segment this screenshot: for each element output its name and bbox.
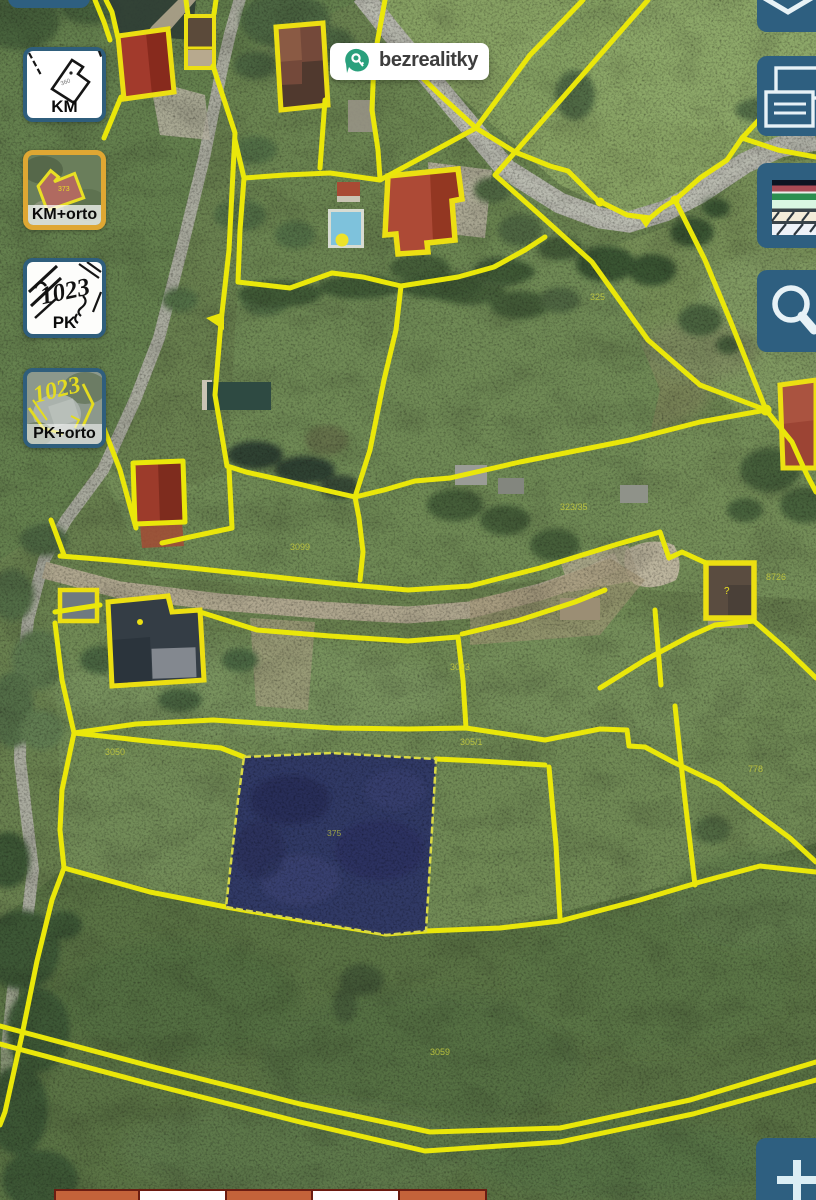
- svg-text:778: 778: [748, 764, 763, 774]
- svg-text:375: 375: [327, 828, 341, 838]
- svg-text:3093: 3093: [450, 662, 470, 672]
- svg-text:323/35: 323/35: [560, 502, 588, 512]
- svg-text:373: 373: [58, 186, 70, 193]
- svg-text:8726: 8726: [766, 572, 786, 582]
- svg-text:3099: 3099: [290, 542, 310, 552]
- svg-text:305/1: 305/1: [460, 737, 483, 747]
- svg-text:325: 325: [590, 292, 605, 302]
- svg-text:?: ?: [724, 586, 730, 597]
- svg-text:3050: 3050: [105, 747, 125, 757]
- svg-text:3059: 3059: [430, 1047, 450, 1057]
